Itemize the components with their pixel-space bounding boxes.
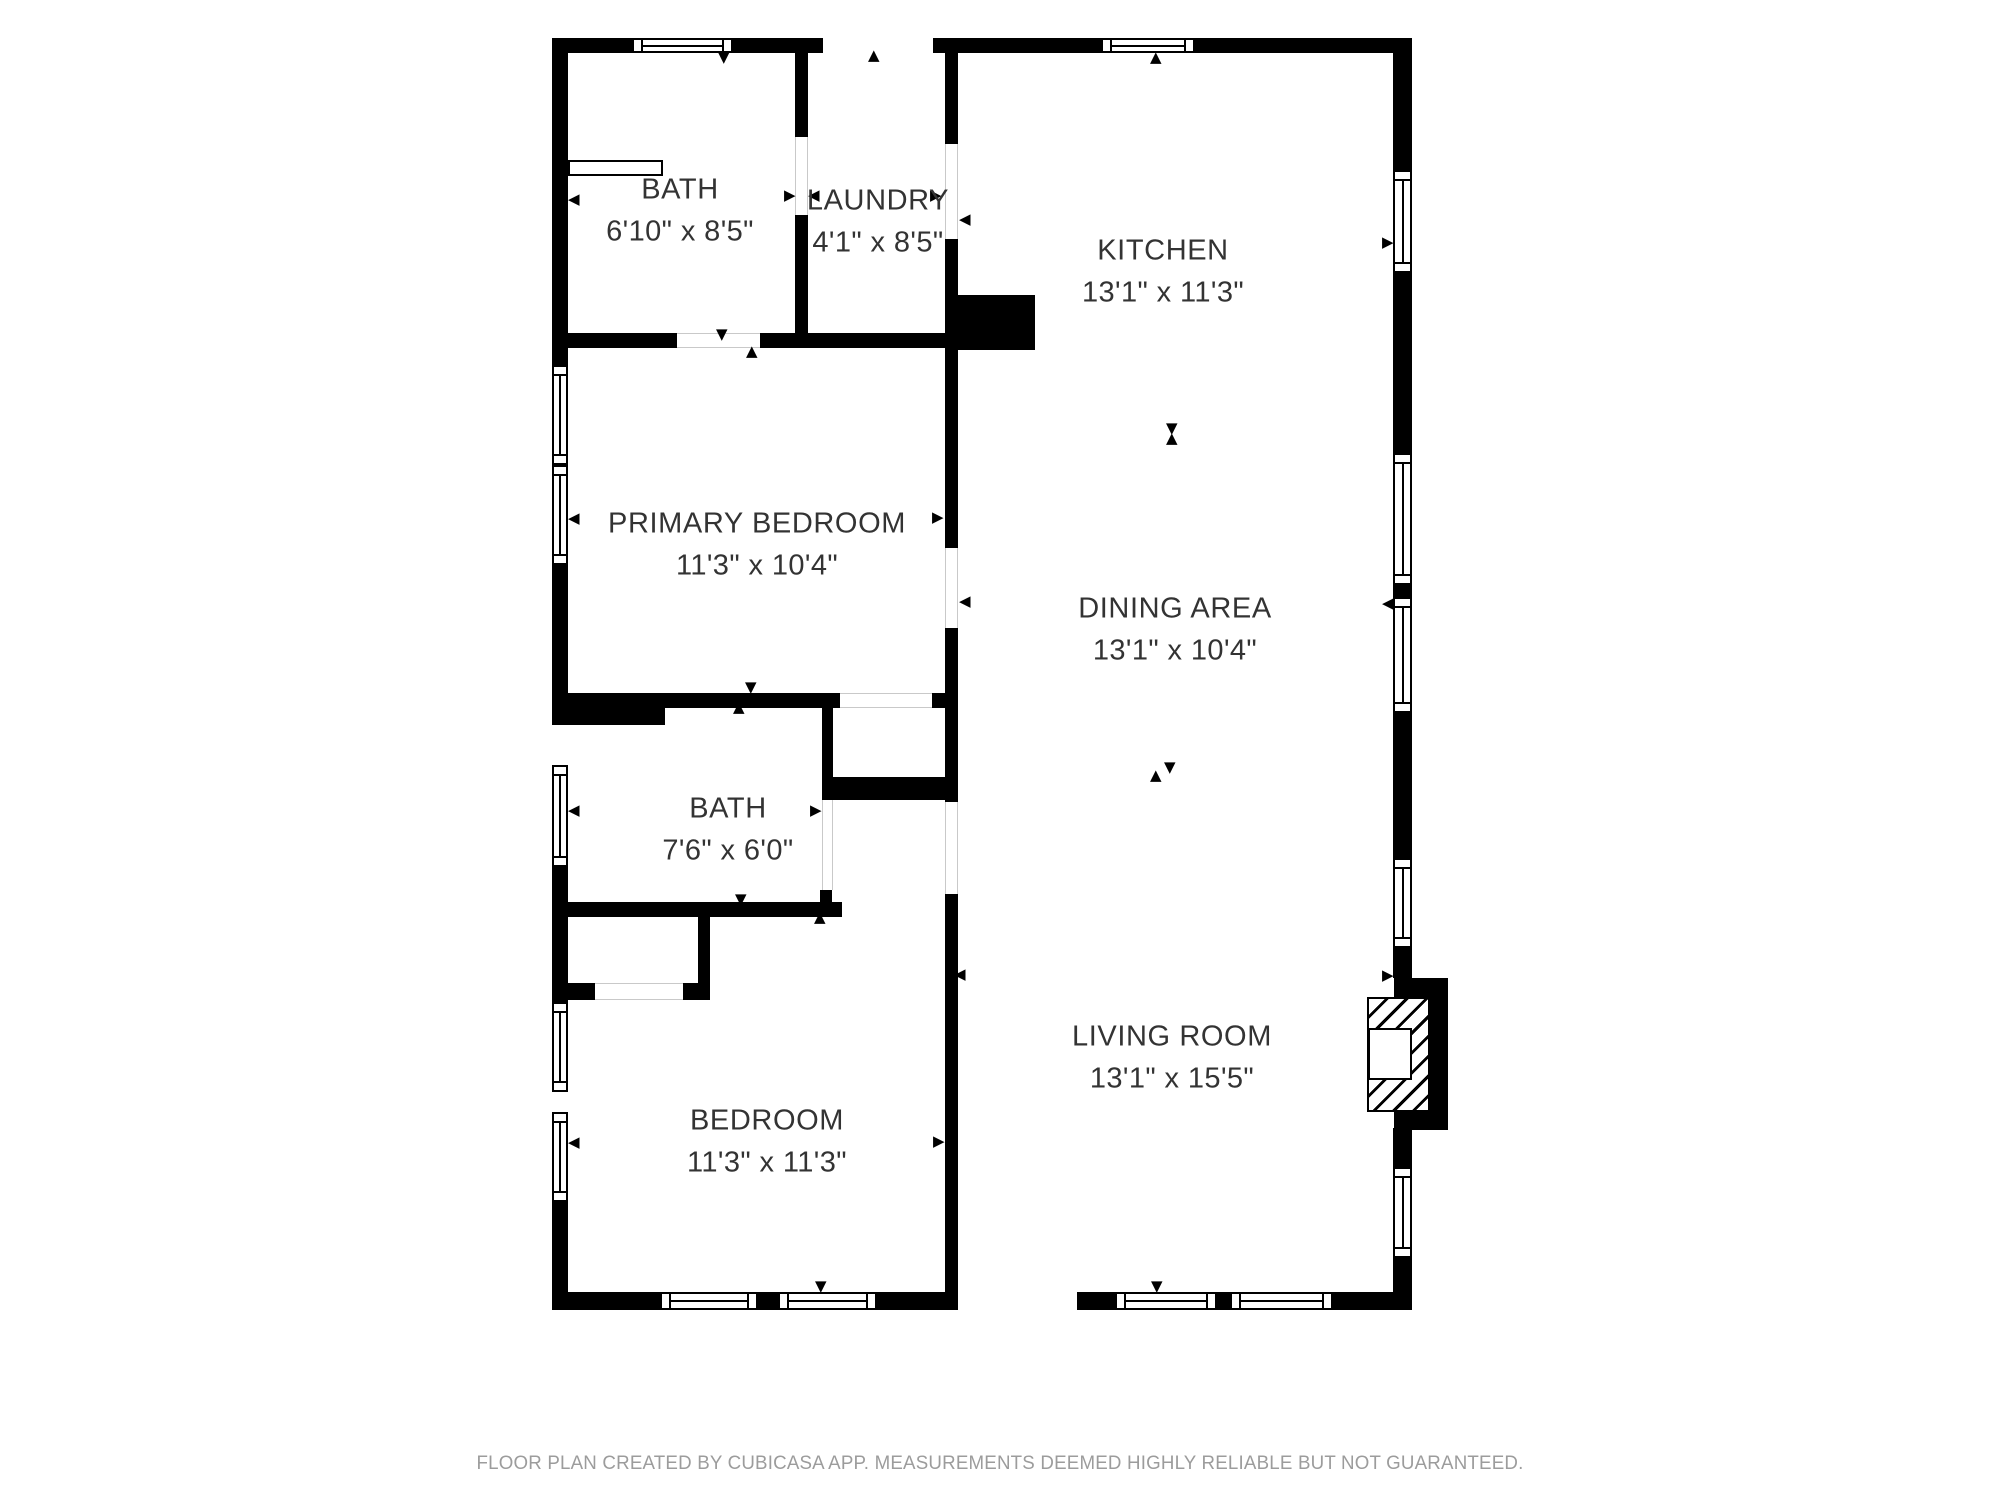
room-label-bath-2: BATH 7'6" x 6'0" (662, 793, 793, 868)
room-name: PRIMARY BEDROOM (608, 508, 906, 541)
room-name: BATH (662, 793, 793, 826)
arrow-down: ▼ (745, 680, 757, 695)
window (552, 1002, 568, 1092)
wall-segment (758, 1292, 778, 1310)
arrow-up: ▲ (868, 48, 880, 63)
window (778, 1292, 877, 1310)
room-name: KITCHEN (1082, 235, 1244, 268)
footer-disclaimer: FLOOR PLAN CREATED BY CUBICASA APP. MEAS… (40, 1452, 1960, 1475)
room-name: LAUNDRY (807, 185, 949, 218)
door-opening (945, 802, 958, 894)
door-opening (945, 548, 958, 628)
wall-segment (1077, 1292, 1115, 1310)
wall-segment (822, 777, 957, 800)
door-opening (840, 693, 932, 708)
arrow-left: ◀ (959, 594, 971, 609)
room-label-dining-area: DINING AREA 13'1" x 10'4" (1078, 593, 1272, 668)
room-dimensions: 11'3" x 11'3" (687, 1147, 847, 1180)
arrow-up: ▲ (1150, 50, 1162, 65)
wall-segment (958, 295, 1035, 350)
arrow-down: ▼ (718, 50, 730, 65)
room-dimensions: 7'6" x 6'0" (662, 835, 793, 868)
room-name: DINING AREA (1078, 593, 1272, 626)
arrow-left: ◀ (959, 212, 971, 227)
wall-segment (933, 38, 1101, 53)
window (1230, 1292, 1333, 1310)
arrow-down: ▼ (1151, 1279, 1163, 1294)
wall-segment (568, 983, 595, 1000)
wall-segment (552, 867, 568, 1002)
wall-segment (1393, 273, 1412, 453)
arrow-up: ▲ (733, 700, 745, 715)
arrow-right: ▶ (933, 1134, 945, 1149)
room-label-bath-1: BATH 6'10" x 8'5" (606, 174, 754, 249)
room-label-kitchen: KITCHEN 13'1" x 11'3" (1082, 235, 1244, 310)
arrow-up: ▲ (1150, 768, 1162, 783)
room-name: BATH (606, 174, 754, 207)
room-dimensions: 6'10" x 8'5" (606, 216, 754, 249)
fireplace-firebox (1368, 1028, 1412, 1080)
window (1115, 1292, 1217, 1310)
room-label-primary-bedroom: PRIMARY BEDROOM 11'3" x 10'4" (608, 508, 906, 583)
arrow-right: ▶ (784, 188, 796, 203)
wall-segment (552, 38, 568, 365)
window (552, 1112, 568, 1202)
window (552, 365, 568, 465)
wall-segment (945, 894, 958, 1292)
wall-segment (552, 565, 568, 702)
wall-segment (1393, 53, 1412, 170)
room-dimensions: 13'1" x 15'5" (1072, 1063, 1272, 1096)
arrow-right: ▶ (1382, 968, 1394, 983)
window (1393, 597, 1412, 713)
window (1393, 858, 1412, 948)
wall-segment (1393, 948, 1412, 978)
arrow-up: ▲ (746, 344, 758, 359)
wall-segment (683, 983, 710, 1000)
arrow-left: ◀ (568, 192, 580, 207)
wall-segment (1393, 585, 1412, 597)
wall-segment (760, 333, 958, 348)
arrow-up: ▲ (814, 910, 826, 925)
wall-segment (1195, 38, 1412, 53)
room-label-bedroom: BEDROOM 11'3" x 11'3" (687, 1105, 847, 1180)
arrow-down: ▼ (716, 327, 728, 342)
window (552, 765, 568, 867)
room-name: LIVING ROOM (1072, 1021, 1272, 1054)
wall-segment (552, 902, 842, 917)
wall-segment (552, 1292, 660, 1310)
wall-segment (795, 53, 808, 137)
arrow-right: ▶ (932, 510, 944, 525)
arrow-right: ▶ (1382, 235, 1394, 250)
arrow-left: ◀ (568, 1135, 580, 1150)
wall-segment (945, 628, 958, 802)
wall-segment (945, 38, 958, 144)
wall-segment (1393, 713, 1412, 858)
window (552, 465, 568, 565)
arrow-up: ▲ (1166, 431, 1178, 446)
arrow-down: ▼ (1164, 760, 1176, 775)
wall-segment (1333, 1292, 1412, 1310)
arrow-down: ▼ (815, 1279, 827, 1294)
wall-segment (552, 333, 677, 348)
room-dimensions: 4'1" x 8'5" (807, 227, 949, 260)
room-dimensions: 13'1" x 11'3" (1082, 277, 1244, 310)
arrow-left: ◀ (568, 511, 580, 526)
door-opening (822, 800, 833, 890)
window (1101, 38, 1195, 53)
room-label-laundry: LAUNDRY 4'1" x 8'5" (807, 185, 949, 260)
wall-segment (877, 1292, 958, 1310)
room-dimensions: 11'3" x 10'4" (608, 550, 906, 583)
wall-segment (552, 693, 840, 708)
door-opening (595, 983, 683, 1000)
arrow-left: ◀ (954, 967, 966, 982)
wall-segment (945, 239, 958, 548)
arrow-right: ▶ (810, 803, 822, 818)
wall-segment (822, 708, 833, 800)
wall-segment (1217, 1292, 1230, 1310)
room-label-living-room: LIVING ROOM 13'1" x 15'5" (1072, 1021, 1272, 1096)
room-dimensions: 13'1" x 10'4" (1078, 635, 1272, 668)
arrow-down: ▼ (735, 892, 747, 907)
window (1393, 1167, 1412, 1258)
window (1393, 170, 1412, 273)
wall-segment (1393, 1128, 1412, 1167)
room-name: BEDROOM (687, 1105, 847, 1138)
arrow-left: ◀ (1382, 596, 1394, 611)
arrow-left: ◀ (568, 803, 580, 818)
wall-segment (733, 38, 823, 53)
window (1393, 453, 1412, 585)
window (660, 1292, 758, 1310)
floor-plan: ▼▲▲◀▶◀▶◀▼▲◀▶◀▼▲▼▲◀▶▼▲◀▲▼◀▶▼▶◀▶▼ BATH 6'1… (0, 0, 2000, 1500)
